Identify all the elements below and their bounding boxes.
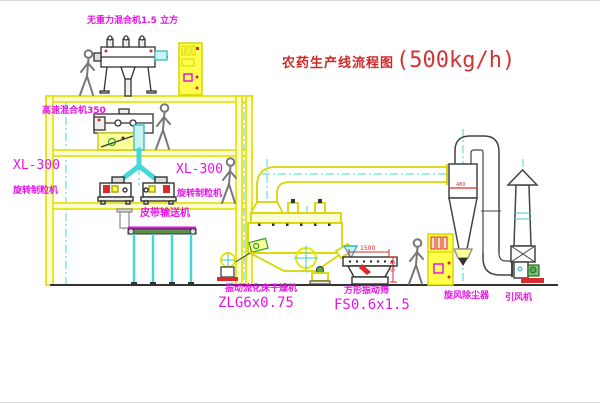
gravity-free-mixer bbox=[94, 36, 168, 96]
label-granulator-model-left: XL-300 bbox=[13, 159, 60, 172]
worker-figure-ground bbox=[409, 239, 423, 284]
control-cabinet-bottom bbox=[428, 234, 453, 285]
title-capacity: (500kg/h) bbox=[396, 48, 515, 73]
label-sieve-model: FS0.6x1.5 bbox=[334, 298, 410, 312]
dim-cyclone: 480 bbox=[456, 182, 466, 188]
label-cyclone: 旋风除尘器 bbox=[444, 292, 489, 301]
dim-sieve-width: 1500 bbox=[360, 245, 375, 252]
granulator-right bbox=[141, 177, 176, 204]
label-fan: 引风机 bbox=[505, 294, 532, 303]
worker-figure-floor3 bbox=[222, 158, 236, 203]
label-dryer-model: ZLG6x0.75 bbox=[218, 296, 294, 310]
label-granulator-name-right: 旋转制粒机 bbox=[177, 190, 222, 199]
dim-sieve-height: 945 bbox=[390, 260, 397, 272]
worker-figure-roof bbox=[80, 50, 94, 95]
label-granulator-name-left: 旋转制粒机 bbox=[13, 187, 58, 196]
label-gravity-mixer: 无重力混合机1.5 立方 bbox=[87, 17, 178, 26]
belt-conveyor bbox=[128, 228, 196, 285]
label-dryer-name: 振动流化床干燥机 bbox=[225, 285, 297, 294]
granulator-left bbox=[98, 177, 133, 204]
title-chinese: 农药生产线流程图 bbox=[282, 52, 394, 71]
label-granulator-model-right: XL-300 bbox=[176, 163, 223, 176]
discharge-pipe bbox=[117, 209, 132, 228]
label-belt-conveyor: 皮带输送机 bbox=[140, 209, 190, 219]
dryer-motor-stand bbox=[217, 253, 250, 281]
label-highspeed-mixer: 高速混合机350 bbox=[42, 107, 106, 116]
cyclone-dust-collector: 480 bbox=[449, 136, 512, 277]
diagram-title: 农药生产线流程图 (500kg/h) bbox=[282, 48, 515, 73]
worker-figure-floor2 bbox=[156, 104, 170, 149]
flow-diagram-canvas: 1500 945 480 bbox=[0, 0, 600, 403]
control-cabinet-top bbox=[179, 43, 202, 95]
label-sieve-name: 方形振动筛 bbox=[344, 287, 389, 296]
exhaust-stack-and-fan bbox=[508, 170, 544, 283]
